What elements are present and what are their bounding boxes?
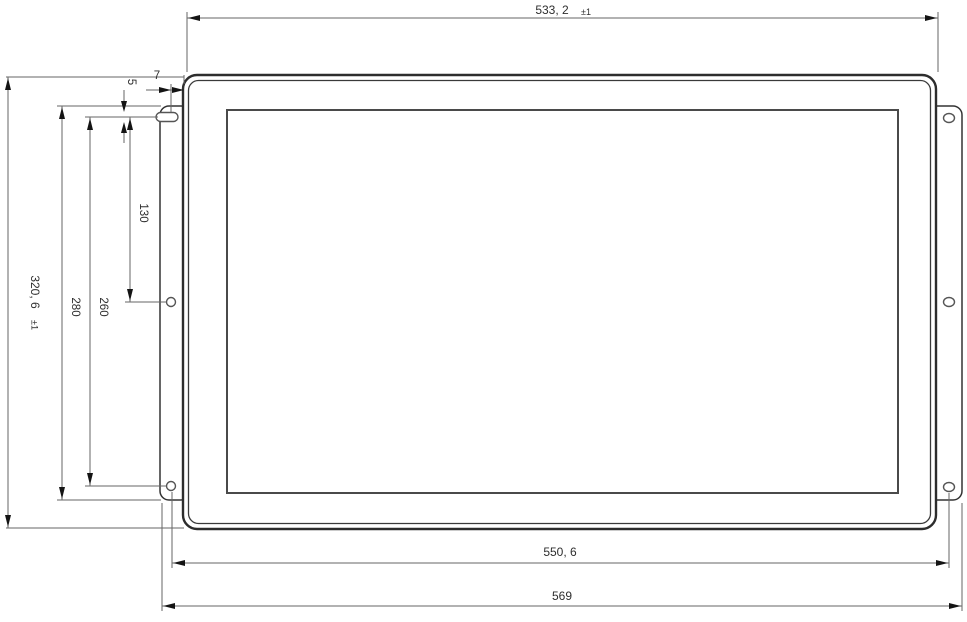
dimension-label-overall-width: 569 [552,589,572,603]
dimension-label-mount-hole-span: 550, 6 [543,545,577,559]
dimension-label-slot-offset: 7 [154,70,160,82]
arrowhead [173,560,185,566]
arrowhead [188,15,200,21]
mounting-hole-right-bottom [944,483,955,492]
dimension-label-hole-span-outer: 260 [97,297,109,316]
arrowhead [925,15,937,21]
mounting-hole-left-middle [167,298,176,307]
dimension-top-width: 533, 2 ±1 [187,3,938,72]
arrowhead [163,603,175,609]
dimension-label-slot-height: 5 [125,79,137,85]
dimension-label-hole-span-upper: 130 [137,203,149,222]
dimension-label-panel-height: 320, 6 [28,275,42,309]
screen-area [227,110,898,493]
panel-object [156,75,962,529]
arrowhead [59,487,65,499]
drawing-canvas: 533, 2 ±1 320, 6 ±1 280 260 130 [0,0,967,622]
mounting-hole-left-bottom [167,482,176,491]
arrowhead [121,122,127,133]
arrowhead [5,78,11,90]
mounting-hole-right-middle [944,298,955,307]
arrowhead [5,515,11,527]
arrowhead [87,118,93,130]
mounting-slot [156,113,178,122]
arrowhead [936,560,948,566]
arrowhead [87,473,93,485]
arrowhead [127,289,133,301]
arrowhead [949,603,961,609]
dimension-slot-height: 5 [121,79,137,143]
dimension-tolerance-panel-height: ±1 [30,320,40,330]
arrowhead [159,87,171,93]
mounting-hole-right-top [944,114,955,123]
arrowhead [59,107,65,119]
dimension-tolerance-top-width: ±1 [581,7,591,17]
dimension-label-top-width: 533, 2 [535,3,569,17]
arrowhead [127,118,133,130]
dimension-drawing: 533, 2 ±1 320, 6 ±1 280 260 130 [0,0,967,622]
dimension-label-bracket-height: 280 [69,297,81,316]
